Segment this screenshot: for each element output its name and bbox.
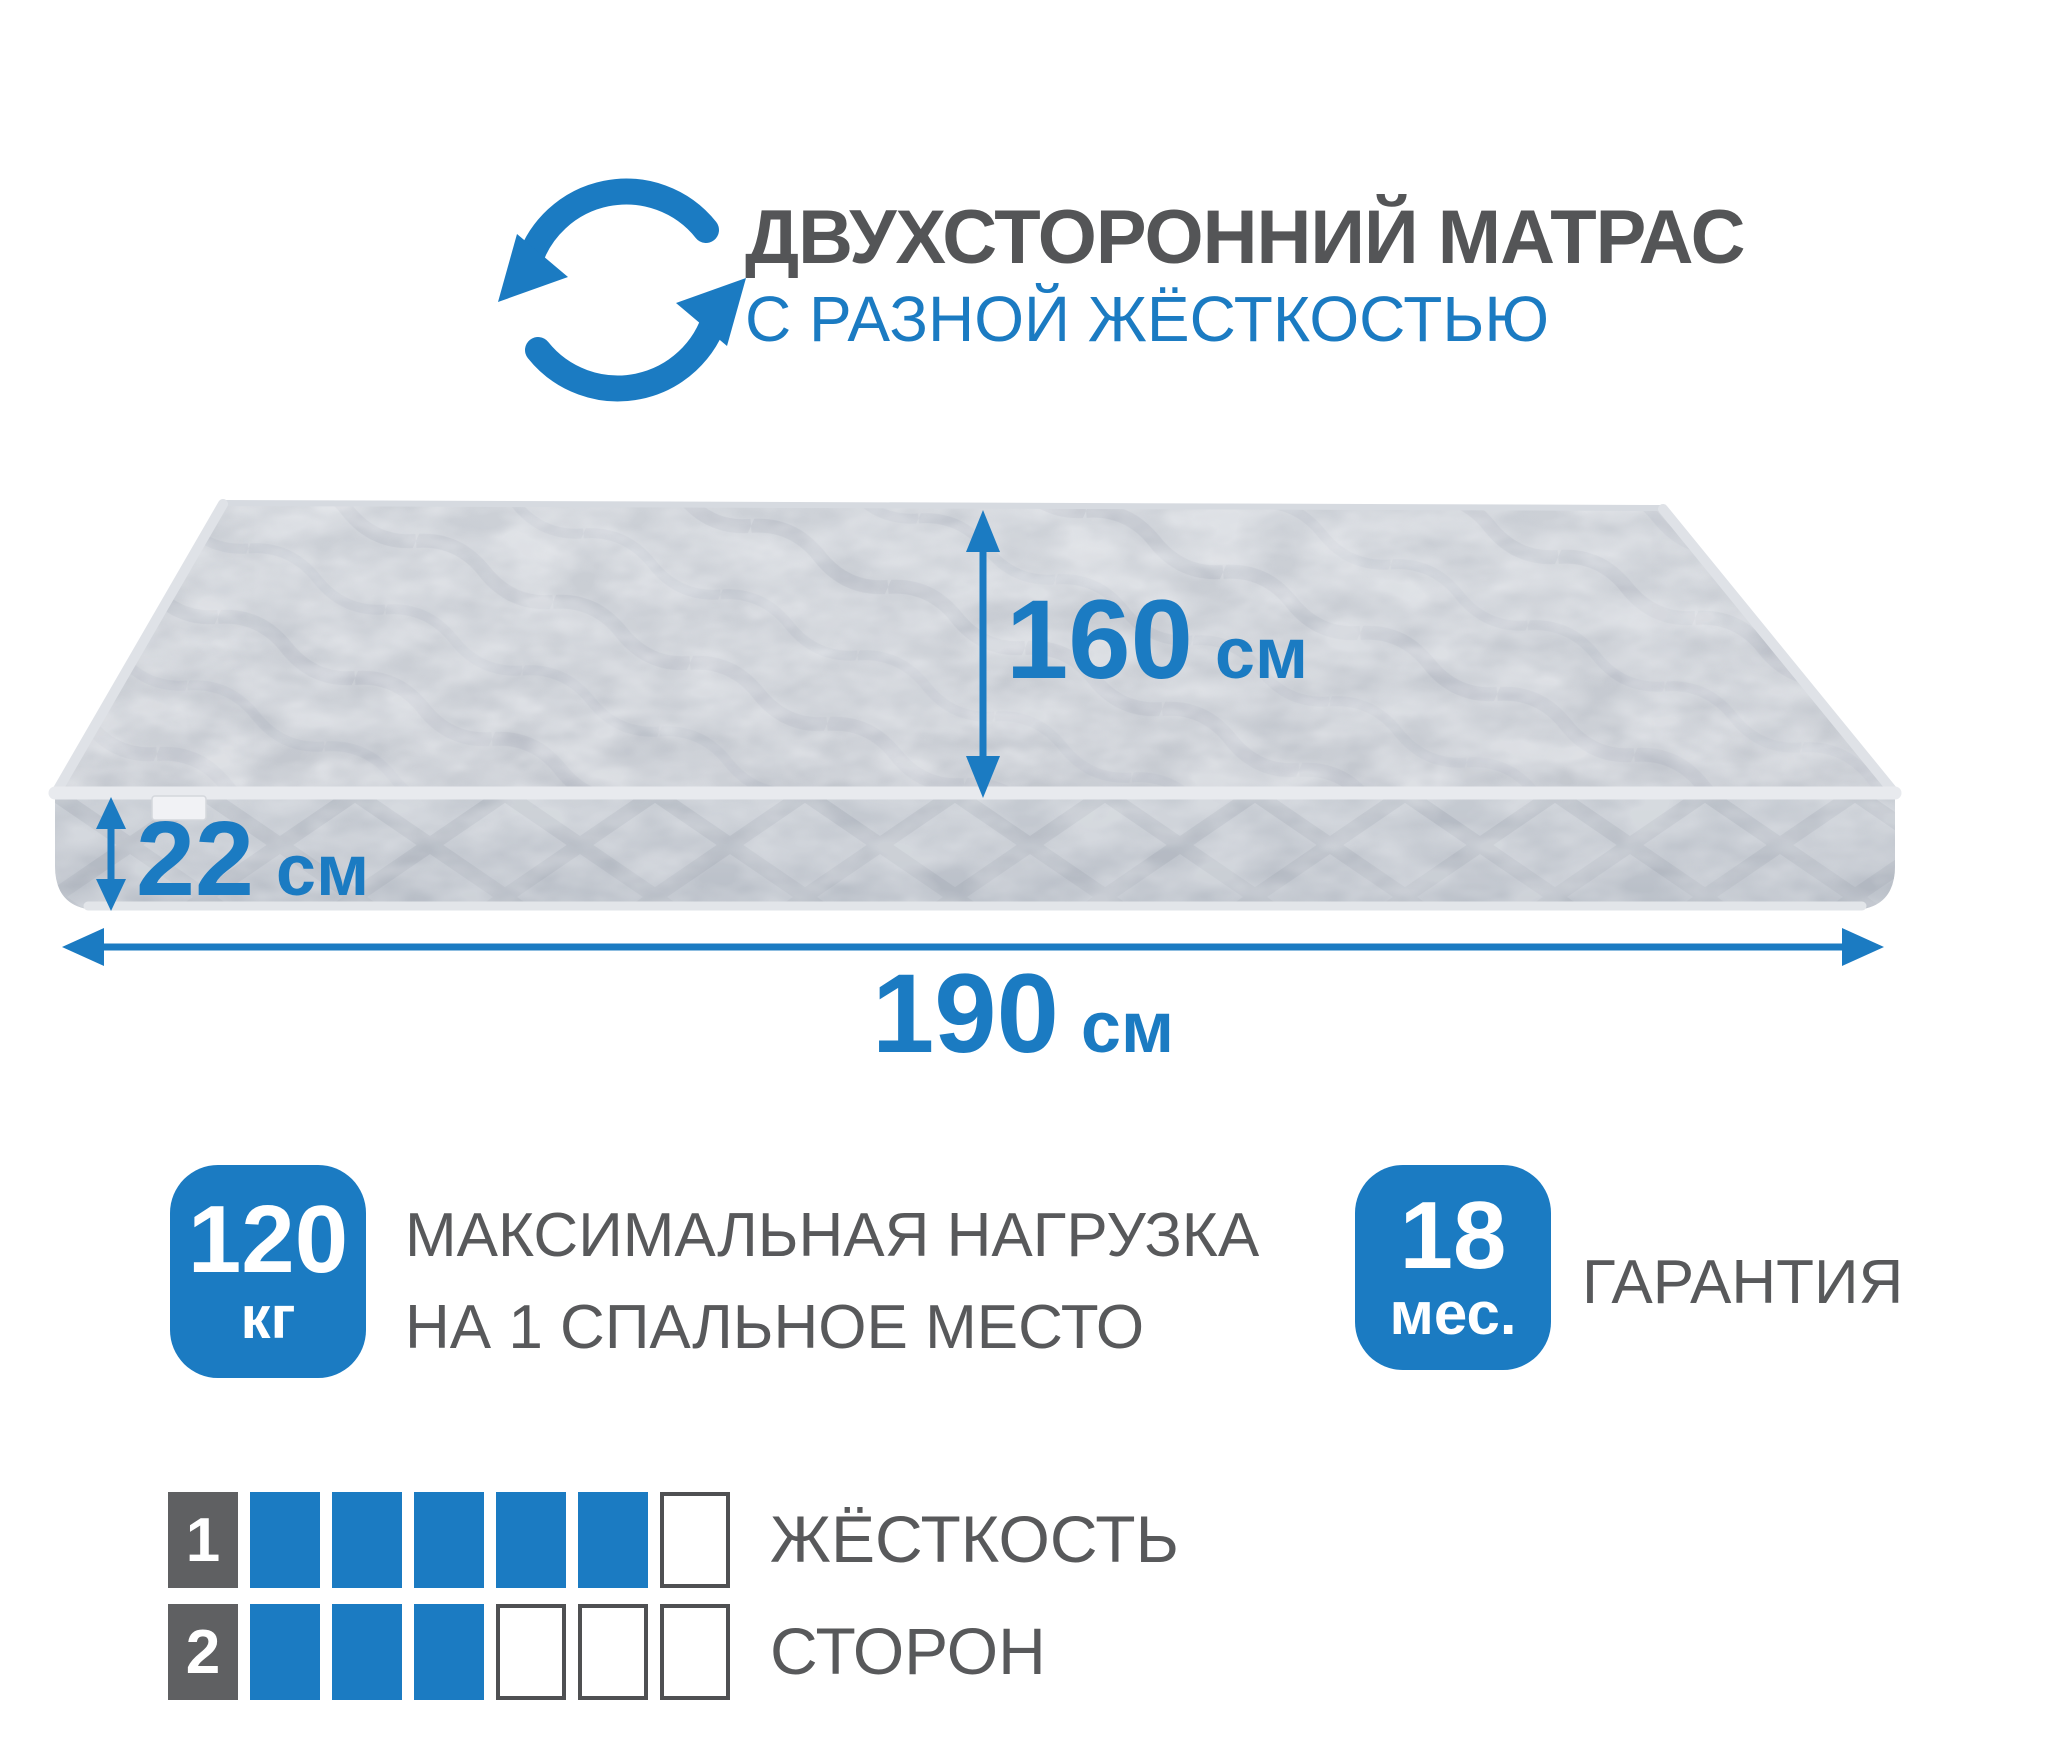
rotate-arrows-icon xyxy=(498,192,746,389)
page-title: ДВУХСТОРОННИЙ МАТРАС xyxy=(745,200,1745,276)
hardness-cell-filled xyxy=(332,1492,402,1588)
hardness-caption-line2: СТОРОН xyxy=(770,1618,1046,1684)
max-load-badge: 120 кг xyxy=(170,1165,366,1378)
page-subtitle: С РАЗНОЙ ЖЁСТКОСТЬЮ xyxy=(745,287,1549,351)
mattress-infographic: ДВУХСТОРОННИЙ МАТРАС С РАЗНОЙ ЖЁСТКОСТЬЮ… xyxy=(0,0,2048,1757)
warranty-value: 18 xyxy=(1400,1190,1507,1281)
dimension-height-unit: см xyxy=(276,831,369,911)
warranty-unit: мес. xyxy=(1389,1282,1516,1345)
hardness-cell-filled xyxy=(332,1604,402,1700)
hardness-cell-filled xyxy=(414,1492,484,1588)
hardness-cell-filled xyxy=(578,1492,648,1588)
max-load-value: 120 xyxy=(188,1194,348,1285)
hardness-caption-line1: ЖЁСТКОСТЬ xyxy=(770,1506,1179,1572)
max-load-caption-line1: МАКСИМАЛЬНАЯ НАГРУЗКА xyxy=(405,1190,1259,1282)
hardness-cell-filled xyxy=(250,1492,320,1588)
hardness-cell-empty xyxy=(496,1604,566,1700)
dimension-length-unit: см xyxy=(1081,988,1174,1068)
hardness-side-label-2: 2 xyxy=(168,1604,238,1700)
max-load-caption: МАКСИМАЛЬНАЯ НАГРУЗКА НА 1 СПАЛЬНОЕ МЕСТ… xyxy=(405,1190,1259,1374)
max-load-caption-line2: НА 1 СПАЛЬНОЕ МЕСТО xyxy=(405,1282,1259,1374)
dimension-length-value: 190 xyxy=(872,951,1059,1076)
max-load-unit: кг xyxy=(240,1286,295,1349)
hardness-cell-empty xyxy=(660,1492,730,1588)
hardness-row-1: 1 xyxy=(168,1492,730,1588)
dimension-width-label: 160см xyxy=(1006,584,1308,696)
hardness-cell-filled xyxy=(414,1604,484,1700)
dimension-length-label: 190см xyxy=(872,958,1174,1070)
warranty-caption: ГАРАНТИЯ xyxy=(1582,1252,1903,1314)
hardness-side-label-1: 1 xyxy=(168,1492,238,1588)
hardness-cell-empty xyxy=(578,1604,648,1700)
dimension-width-value: 160 xyxy=(1006,577,1193,702)
hardness-cell-empty xyxy=(660,1604,730,1700)
warranty-badge: 18 мес. xyxy=(1355,1165,1551,1370)
dimension-height-value: 22 xyxy=(136,800,254,918)
hardness-row-2: 2 xyxy=(168,1604,730,1700)
hardness-cell-filled xyxy=(250,1604,320,1700)
dimension-height-label: 22см xyxy=(136,806,369,912)
dimension-width-unit: см xyxy=(1215,614,1308,694)
hardness-cell-filled xyxy=(496,1492,566,1588)
